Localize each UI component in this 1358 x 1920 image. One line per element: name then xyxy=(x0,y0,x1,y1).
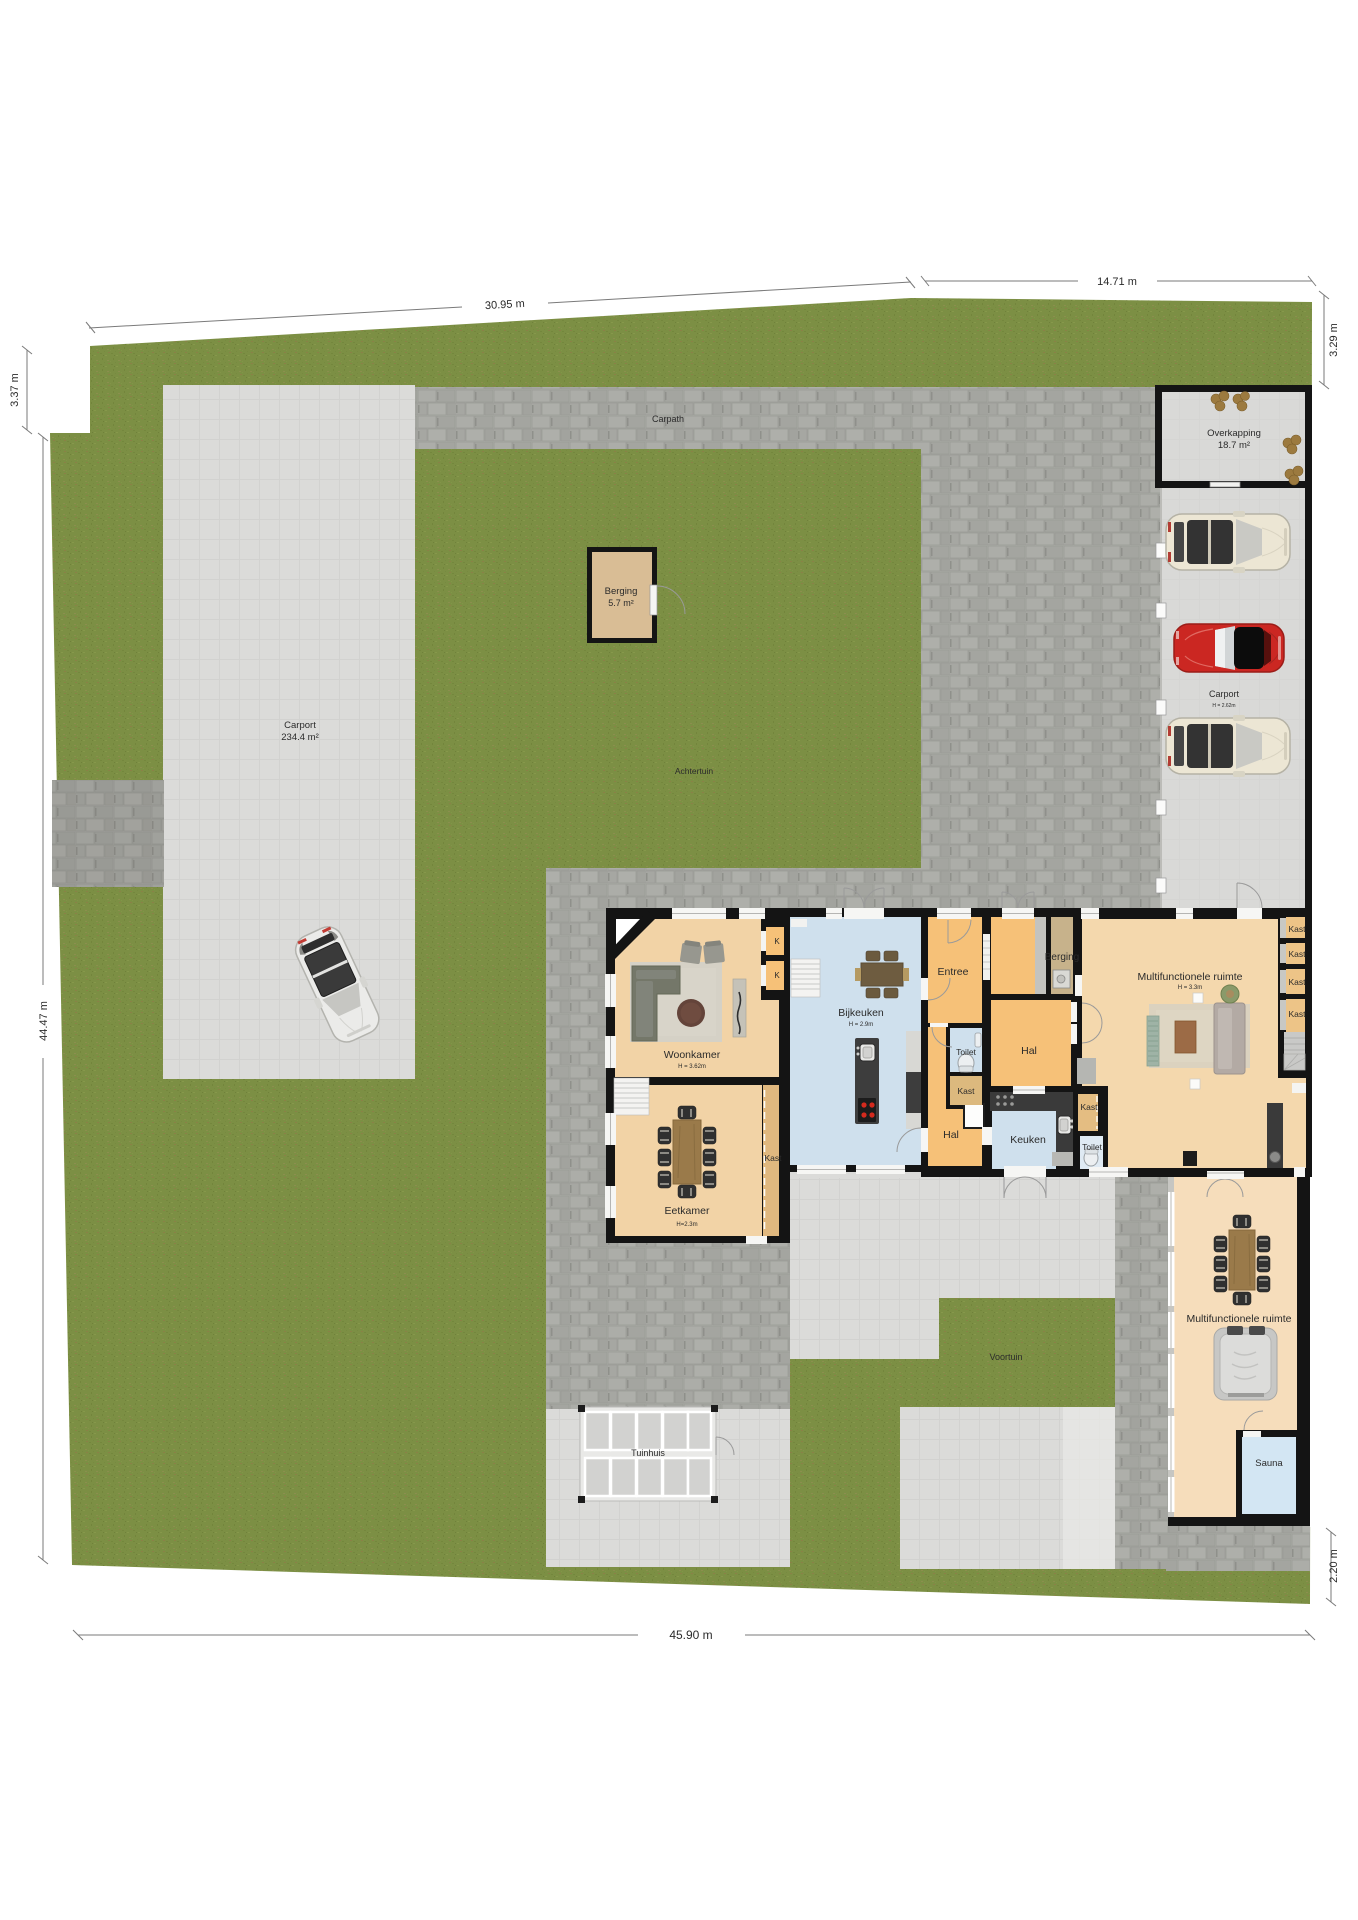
svg-text:Kast: Kast xyxy=(1288,949,1306,959)
svg-text:K: K xyxy=(774,937,780,946)
svg-text:Achtertuin: Achtertuin xyxy=(675,766,714,776)
svg-text:H = 3.62m: H = 3.62m xyxy=(678,1064,706,1070)
svg-text:3.37 m: 3.37 m xyxy=(9,373,21,407)
svg-text:Hal: Hal xyxy=(1021,1045,1037,1057)
svg-text:H = 2.62m: H = 2.62m xyxy=(1212,703,1235,709)
svg-text:Entree: Entree xyxy=(938,966,969,978)
svg-text:14.71 m: 14.71 m xyxy=(1097,276,1137,288)
svg-text:Keuken: Keuken xyxy=(1010,1134,1046,1146)
svg-text:Kast: Kast xyxy=(1288,977,1306,987)
svg-text:Carport: Carport xyxy=(284,720,316,731)
svg-text:Voortuin: Voortuin xyxy=(989,1352,1022,1362)
svg-text:5.7 m²: 5.7 m² xyxy=(608,598,634,608)
svg-text:44.47 m: 44.47 m xyxy=(38,1001,50,1041)
svg-text:Overkapping: Overkapping xyxy=(1207,428,1261,439)
svg-text:Toilet: Toilet xyxy=(1082,1142,1102,1152)
svg-text:2.20 m: 2.20 m xyxy=(1328,1549,1340,1583)
svg-text:Bijkeuken: Bijkeuken xyxy=(838,1007,884,1019)
svg-text:Kast: Kast xyxy=(764,1153,782,1163)
svg-text:Kast: Kast xyxy=(1288,924,1306,934)
svg-text:Carport: Carport xyxy=(1209,689,1240,699)
svg-text:18.7 m²: 18.7 m² xyxy=(1218,440,1250,451)
svg-text:H=2.3m: H=2.3m xyxy=(676,1222,697,1228)
svg-text:Kast: Kast xyxy=(957,1086,975,1096)
svg-text:234.4 m²: 234.4 m² xyxy=(281,732,319,743)
svg-text:Tuinhuis: Tuinhuis xyxy=(631,1448,665,1458)
svg-text:Berging: Berging xyxy=(605,586,638,597)
svg-text:H = 3.3m: H = 3.3m xyxy=(1178,985,1203,991)
svg-text:Berging: Berging xyxy=(1045,952,1079,963)
svg-text:K: K xyxy=(774,971,780,980)
svg-text:Eetkamer: Eetkamer xyxy=(665,1205,710,1217)
svg-text:Carpath: Carpath xyxy=(652,414,684,424)
svg-text:Kast: Kast xyxy=(1080,1102,1098,1112)
svg-text:H = 2.9m: H = 2.9m xyxy=(849,1022,874,1028)
svg-text:Kast: Kast xyxy=(1288,1009,1306,1019)
svg-text:45.90 m: 45.90 m xyxy=(669,1628,712,1642)
svg-text:Sauna: Sauna xyxy=(1255,1458,1283,1469)
svg-text:Woonkamer: Woonkamer xyxy=(664,1049,721,1061)
svg-text:30.95 m: 30.95 m xyxy=(485,298,525,312)
svg-text:Multifunctionele ruimte: Multifunctionele ruimte xyxy=(1137,971,1242,983)
svg-text:Hal: Hal xyxy=(943,1129,959,1141)
svg-text:3.29 m: 3.29 m xyxy=(1328,323,1340,357)
svg-text:Toilet: Toilet xyxy=(956,1047,976,1057)
svg-text:Multifunctionele ruimte: Multifunctionele ruimte xyxy=(1186,1313,1291,1325)
